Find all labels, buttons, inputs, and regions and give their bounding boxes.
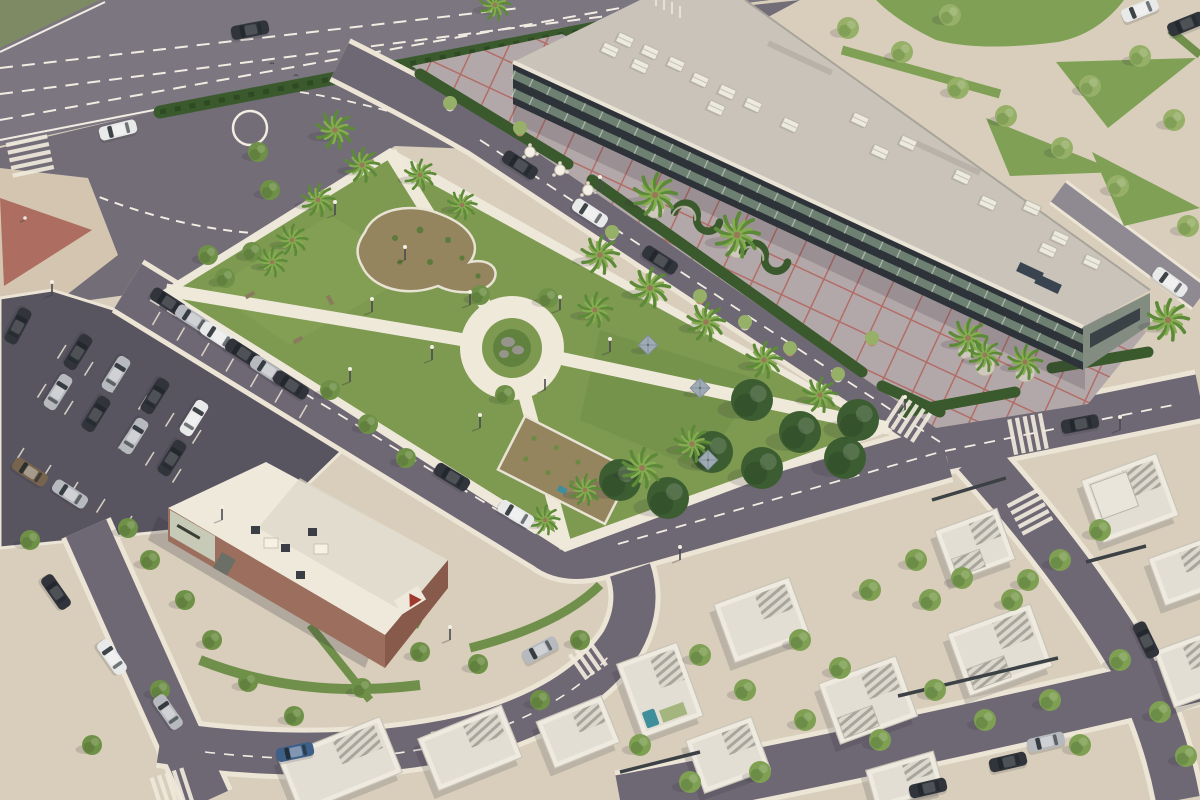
palm-trunk [983, 353, 988, 358]
palm-trunk [817, 392, 822, 397]
tree-crown-light [750, 385, 767, 402]
tree-crown-light [901, 44, 910, 53]
tree-crown-light [224, 271, 232, 279]
palm-trunk [652, 192, 659, 199]
palm-trunk [647, 285, 653, 291]
potted-tree-crown [513, 121, 527, 135]
aerial-render: Aerial 3D render of a mixed-use developm… [0, 0, 1200, 800]
potted-tree-crown [831, 367, 845, 381]
umbrella-pole [699, 387, 701, 389]
tree-crown-light [869, 582, 878, 591]
lamp-head [678, 545, 682, 549]
tree-crown-light [1061, 140, 1070, 149]
tree-crown-light [666, 483, 683, 500]
tree-crown-light [929, 592, 938, 601]
central-mound [493, 329, 531, 367]
lamp-head [50, 280, 54, 284]
tree-crown-light [1079, 737, 1088, 746]
pedestrian [23, 216, 27, 220]
palm-trunk [316, 198, 321, 203]
scene-canvas [0, 0, 1200, 800]
lamp-head [430, 345, 434, 349]
tree-crown-light [579, 633, 587, 641]
potted-tree-crown [738, 315, 752, 329]
tree-crown-light [367, 417, 375, 425]
lamp-head [598, 175, 602, 179]
tree-crown-light [329, 383, 337, 391]
tree-crown-light [744, 682, 753, 691]
lamp-head [543, 375, 547, 379]
tree-crown-light [879, 732, 888, 741]
tree-crown-light [856, 405, 873, 422]
tree-crown-light [127, 521, 135, 529]
lamp-head [558, 295, 562, 299]
palm-trunk [1165, 317, 1171, 323]
potted-tree-crown [605, 225, 619, 239]
lamp-head [403, 245, 407, 249]
palm-trunk [965, 335, 971, 341]
tree-crown-light [1027, 572, 1036, 581]
tree-crown-light [961, 570, 970, 579]
tree-crown-light [984, 712, 993, 721]
lamp-head [468, 290, 472, 294]
palm-trunk [592, 307, 597, 312]
chair [580, 193, 584, 197]
chair [586, 181, 590, 185]
tree-crown-light [149, 553, 157, 561]
tree-crown-light [1089, 78, 1098, 87]
tree-crown-light [247, 675, 255, 683]
palm-trunk [332, 127, 338, 133]
tree-crown-light [699, 647, 708, 656]
tree-crown-light [760, 453, 777, 470]
palm-trunk [1022, 359, 1027, 364]
tree-crown-light [251, 245, 259, 253]
chair [558, 161, 562, 165]
tree-crown-light [759, 764, 768, 773]
palm-trunk [270, 260, 274, 264]
tree-crown-light [915, 552, 924, 561]
chair [528, 143, 532, 147]
tree-crown-light [1005, 108, 1014, 117]
tree-crown-light [184, 593, 192, 601]
palm-trunk [543, 518, 547, 522]
lamp-head [448, 625, 452, 629]
tree-crown-light [934, 682, 943, 691]
umbrella-pole [707, 459, 709, 461]
tree-crown-light [839, 660, 848, 669]
palm-trunk [418, 173, 423, 178]
tree-crown-light [804, 712, 813, 721]
tree-crown-light [91, 738, 99, 746]
palm-trunk [689, 441, 694, 446]
table-top [555, 165, 565, 175]
tree-crown-light [477, 657, 485, 665]
tree-crown-light [957, 80, 966, 89]
tree-crown-light [710, 437, 727, 454]
lamp-head [608, 337, 612, 341]
potted-tree-crown [783, 341, 797, 355]
lamp-head [370, 297, 374, 301]
palm-trunk [583, 488, 588, 493]
tree-crown-light [1187, 218, 1196, 227]
umbrella-pole [647, 344, 649, 346]
lamp-head [333, 200, 337, 204]
tree-crown-light [1139, 48, 1148, 57]
palm-trunk [734, 232, 741, 239]
tree-crown-light [1173, 112, 1182, 121]
tree-crown-light [689, 774, 698, 783]
tree-crown-light [1119, 652, 1128, 661]
lamp-head [903, 395, 907, 399]
potted-tree-crown [693, 289, 707, 303]
tree-crown-light [799, 632, 808, 641]
tree-crown-light [1159, 704, 1168, 713]
chair [565, 170, 569, 174]
palm-trunk [359, 162, 364, 167]
chair [552, 173, 556, 177]
palm-trunk [493, 3, 498, 8]
chair [522, 155, 526, 159]
tree-crown-light [843, 443, 860, 460]
palm-trunk [290, 238, 295, 243]
palm-trunk [761, 357, 766, 362]
lamp-head [348, 367, 352, 371]
table-top [583, 185, 593, 195]
tree-crown-light [504, 388, 512, 396]
tree-crown-light [29, 533, 37, 541]
tree-crown-light [798, 417, 815, 434]
tree-crown-light [949, 7, 958, 16]
tree-crown-light [159, 683, 167, 691]
tree-crown-light [1099, 522, 1108, 531]
tree-crown-light [479, 288, 487, 296]
tree-crown-light [1117, 178, 1126, 187]
tree-crown-light [1185, 748, 1194, 757]
tree-crown-light [361, 681, 369, 689]
lamp-head [478, 413, 482, 417]
tree-crown-light [293, 709, 301, 717]
potted-tree-crown [443, 96, 457, 110]
tree-crown-light [257, 145, 265, 153]
table-top [525, 147, 535, 157]
tree-crown-light [405, 451, 413, 459]
tree-crown-light [547, 291, 555, 299]
tree-crown-light [539, 693, 547, 701]
palm-trunk [597, 252, 603, 258]
tree-crown-light [1059, 552, 1068, 561]
tree-crown-light [419, 645, 427, 653]
tree-crown-light [639, 737, 648, 746]
palm-trunk [460, 203, 464, 207]
potted-tree-crown [865, 331, 879, 345]
lamp-head [220, 505, 224, 509]
tree-crown-light [847, 20, 856, 29]
chair [535, 152, 539, 156]
tree-crown-light [1049, 692, 1058, 701]
tree-crown-light [207, 248, 215, 256]
tree-crown-light [1011, 592, 1020, 601]
tree-crown-light [269, 183, 277, 191]
palm-trunk [703, 319, 709, 325]
palm-trunk [639, 465, 645, 471]
tree-crown-light [211, 633, 219, 641]
lamp-head [1118, 415, 1122, 419]
